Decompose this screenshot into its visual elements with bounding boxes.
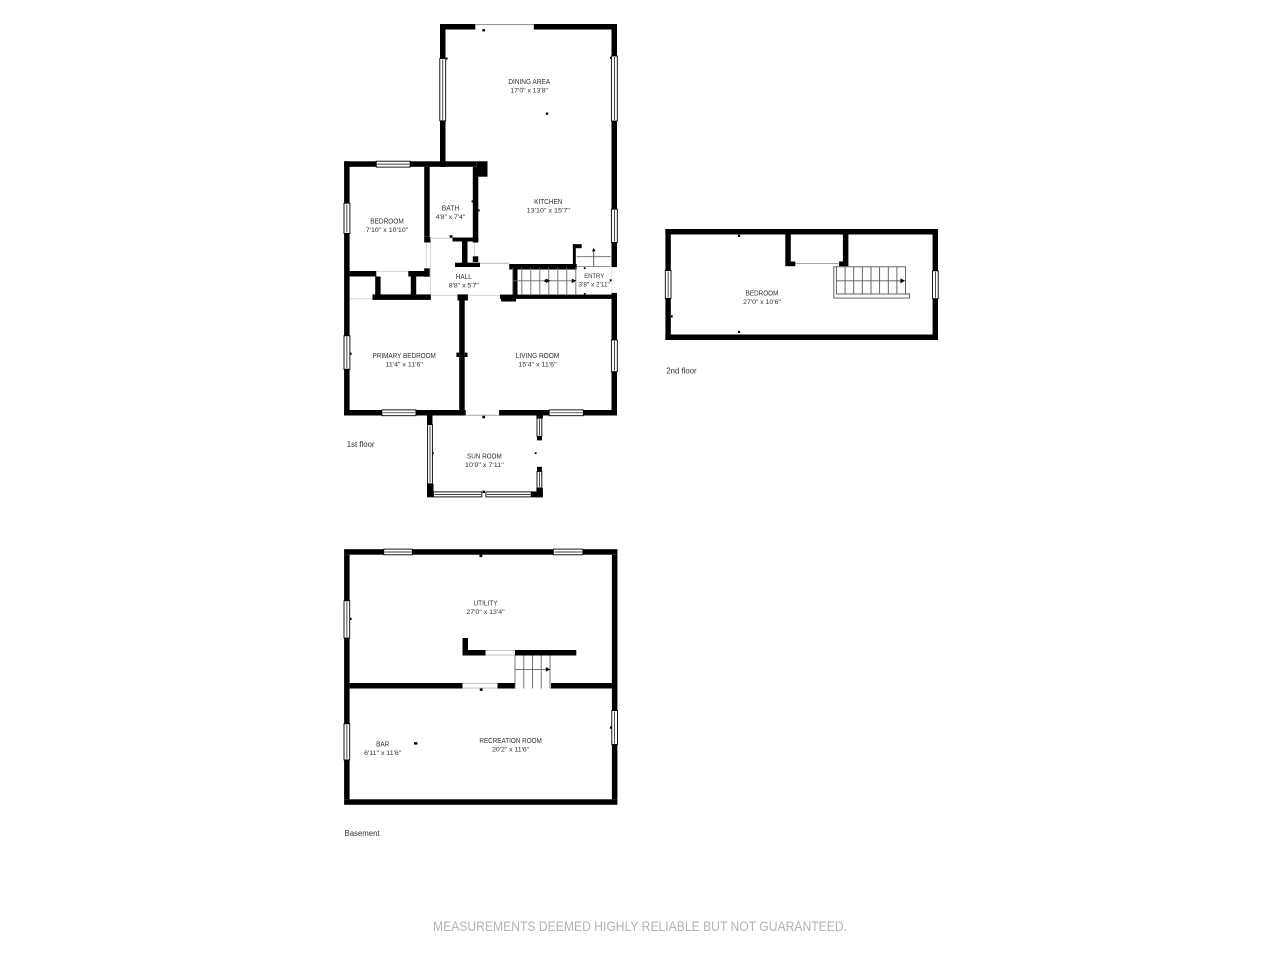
svg-text:UTILITY: UTILITY <box>473 600 497 607</box>
svg-text:10'9" x 7'11": 10'9" x 7'11" <box>465 462 504 469</box>
svg-text:4'8" x 7'4": 4'8" x 7'4" <box>436 214 466 221</box>
svg-text:LIVING ROOM: LIVING ROOM <box>516 353 560 360</box>
svg-text:Basement: Basement <box>345 829 381 838</box>
svg-text:11'4" x 11'6": 11'4" x 11'6" <box>385 361 423 368</box>
svg-text:13'10" x 15'7": 13'10" x 15'7" <box>527 207 571 214</box>
svg-text:PRIMARY BEDROOM: PRIMARY BEDROOM <box>373 353 437 360</box>
svg-text:27'0" x 13'4": 27'0" x 13'4" <box>466 609 505 616</box>
svg-text:8'8" x 5'7": 8'8" x 5'7" <box>449 282 480 289</box>
svg-text:7'10" x 10'10": 7'10" x 10'10" <box>366 227 409 234</box>
svg-text:1st floor: 1st floor <box>347 440 375 449</box>
svg-text:15'4" x 11'6": 15'4" x 11'6" <box>518 361 557 368</box>
svg-text:2nd floor: 2nd floor <box>666 366 697 375</box>
svg-text:DINING AREA: DINING AREA <box>508 79 550 86</box>
svg-text:HALL: HALL <box>456 274 472 281</box>
svg-text:27'0" x 10'6": 27'0" x 10'6" <box>743 299 781 306</box>
svg-text:SUN ROOM: SUN ROOM <box>467 453 502 460</box>
svg-text:BAR: BAR <box>376 741 389 748</box>
svg-text:BATH: BATH <box>442 205 460 212</box>
svg-text:KITCHEN: KITCHEN <box>534 199 562 206</box>
svg-text:ENTRY: ENTRY <box>584 273 605 280</box>
svg-text:BEDROOM: BEDROOM <box>370 218 404 225</box>
svg-text:6'11" x 11'6": 6'11" x 11'6" <box>364 750 402 757</box>
svg-text:20'2" x 11'6": 20'2" x 11'6" <box>492 747 530 754</box>
svg-text:MEASUREMENTS DEEMED HIGHLY REL: MEASUREMENTS DEEMED HIGHLY RELIABLE BUT … <box>433 918 847 934</box>
svg-text:BEDROOM: BEDROOM <box>746 290 779 297</box>
svg-text:17'0" x 13'8": 17'0" x 13'8" <box>510 88 548 95</box>
svg-text:3'8" x 2'11": 3'8" x 2'11" <box>579 281 610 288</box>
svg-text:RECREATION ROOM: RECREATION ROOM <box>479 738 542 745</box>
